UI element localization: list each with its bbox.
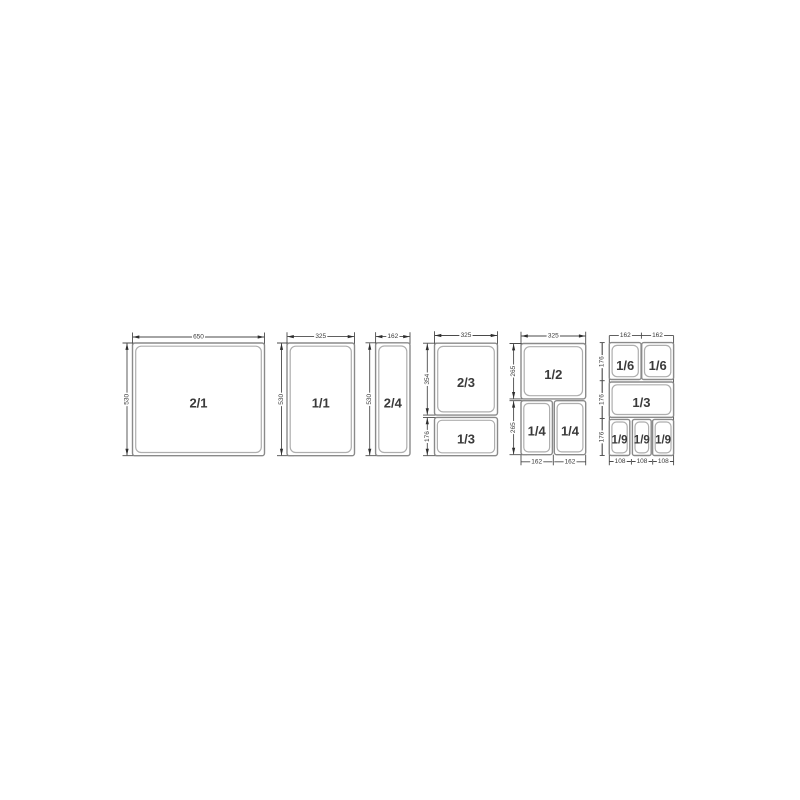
svg-text:1/9: 1/9 <box>634 434 650 446</box>
svg-text:650: 650 <box>193 334 204 341</box>
svg-text:176: 176 <box>599 356 606 367</box>
svg-text:1/3: 1/3 <box>632 395 650 410</box>
svg-text:2/1: 2/1 <box>189 395 207 410</box>
svg-text:108: 108 <box>637 458 648 465</box>
svg-text:325: 325 <box>461 332 472 339</box>
svg-text:1/2: 1/2 <box>544 367 562 382</box>
svg-text:162: 162 <box>387 333 398 340</box>
svg-text:162: 162 <box>620 332 631 339</box>
svg-text:162: 162 <box>652 332 663 339</box>
svg-text:530: 530 <box>366 393 373 404</box>
svg-text:176: 176 <box>599 431 606 442</box>
svg-text:530: 530 <box>124 394 131 405</box>
svg-text:265: 265 <box>510 422 517 433</box>
svg-text:162: 162 <box>531 458 542 465</box>
svg-text:176: 176 <box>599 394 606 405</box>
svg-text:325: 325 <box>548 333 559 340</box>
svg-text:1/4: 1/4 <box>528 424 547 439</box>
svg-text:1/4: 1/4 <box>561 424 580 439</box>
svg-text:1/3: 1/3 <box>457 432 475 447</box>
svg-text:1/1: 1/1 <box>312 395 330 410</box>
svg-text:530: 530 <box>278 394 285 405</box>
svg-text:108: 108 <box>615 458 626 465</box>
svg-text:1/6: 1/6 <box>649 358 667 373</box>
svg-text:354: 354 <box>424 373 431 384</box>
svg-text:2/3: 2/3 <box>457 375 475 390</box>
svg-text:176: 176 <box>424 431 431 442</box>
svg-text:1/9: 1/9 <box>655 434 671 446</box>
svg-text:265: 265 <box>510 365 517 376</box>
svg-text:1/9: 1/9 <box>612 434 628 446</box>
svg-text:2/4: 2/4 <box>384 395 403 410</box>
svg-text:325: 325 <box>315 333 326 340</box>
svg-text:1/6: 1/6 <box>616 358 634 373</box>
svg-text:162: 162 <box>565 458 576 465</box>
svg-text:108: 108 <box>658 458 669 465</box>
